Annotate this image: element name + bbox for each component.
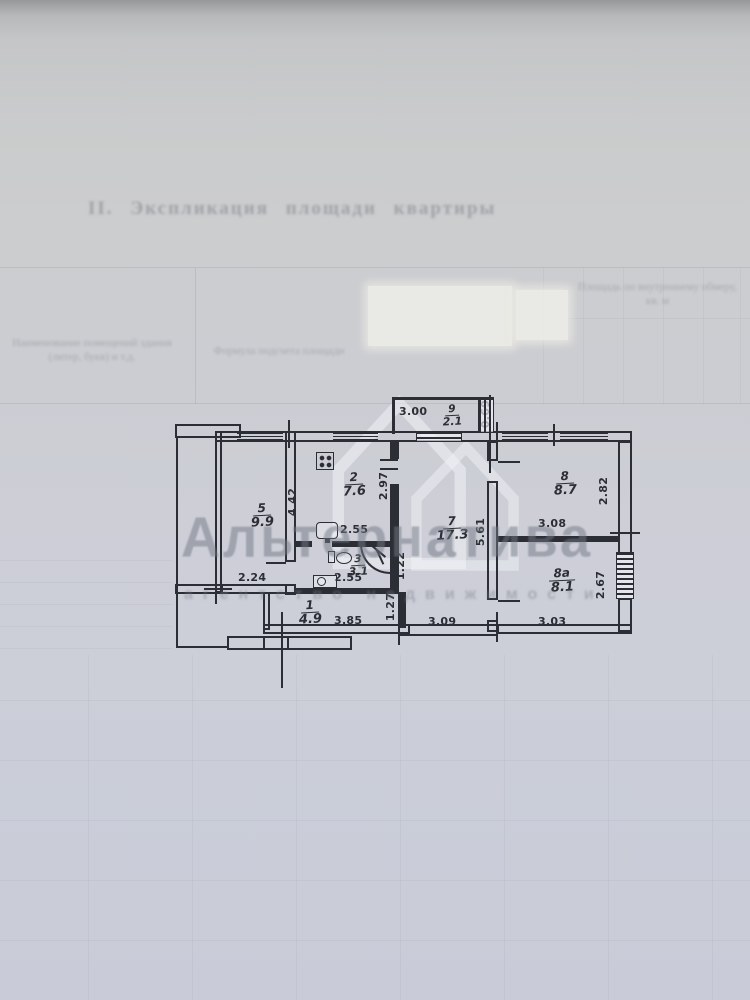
watermark-brand: Альтернатива: [181, 506, 593, 570]
window: [560, 432, 608, 441]
wall: [618, 441, 632, 554]
balcony-door-window: [416, 431, 462, 442]
dim-label: 3.00: [399, 406, 427, 418]
window: [616, 552, 634, 599]
dimension-tick: [496, 422, 498, 452]
dimension-tick: [489, 395, 491, 473]
dimension-tick: [610, 532, 640, 534]
room-area: 8.7: [543, 483, 588, 499]
washer-drum-icon: [317, 577, 326, 586]
wall: [176, 436, 178, 648]
wall: [497, 624, 632, 634]
room-label-kitchen: 2 7.6: [333, 465, 375, 500]
dim-label: 2.24: [238, 572, 266, 584]
wall: [398, 624, 498, 636]
door-leaf: [380, 459, 398, 461]
door-leaf: [498, 461, 520, 463]
wall: [263, 624, 410, 634]
dimension-tick: [281, 612, 283, 688]
balcony-wall: [392, 397, 395, 434]
dimension-tick: [288, 420, 290, 448]
dim-label: 2.97: [378, 469, 390, 503]
door-leaf: [380, 468, 398, 470]
dimension-tick: [398, 613, 400, 645]
room-area: 7.6: [334, 484, 375, 500]
balcony-end-window: [478, 399, 494, 433]
scanned-document-page: II. Экспликация площади квартиры Наимено…: [0, 0, 750, 1000]
window: [333, 432, 378, 441]
dim-label: 2.55: [334, 572, 362, 584]
window: [237, 432, 283, 441]
stair-landing: [227, 636, 352, 650]
stove-icon: [316, 452, 334, 470]
wall: [176, 646, 229, 648]
dimension-tick: [496, 612, 498, 642]
window: [502, 432, 548, 441]
stair-landing: [287, 636, 289, 650]
room-label-room8: 8 8.7: [542, 464, 588, 499]
dimension-tick: [553, 424, 555, 446]
room-label-balcony: 9 2.1: [429, 396, 475, 429]
room-area: 2.1: [430, 415, 475, 429]
wall: [390, 441, 399, 459]
stair-landing: [263, 636, 265, 650]
dim-label: 2.82: [598, 474, 610, 508]
watermark-tagline: агентство недвижимости: [184, 586, 604, 604]
floor-plan: 9 2.1 2 7.6 5 9.9 3 3.1 1 4.9 7 17.3 8 8…: [0, 0, 750, 1000]
